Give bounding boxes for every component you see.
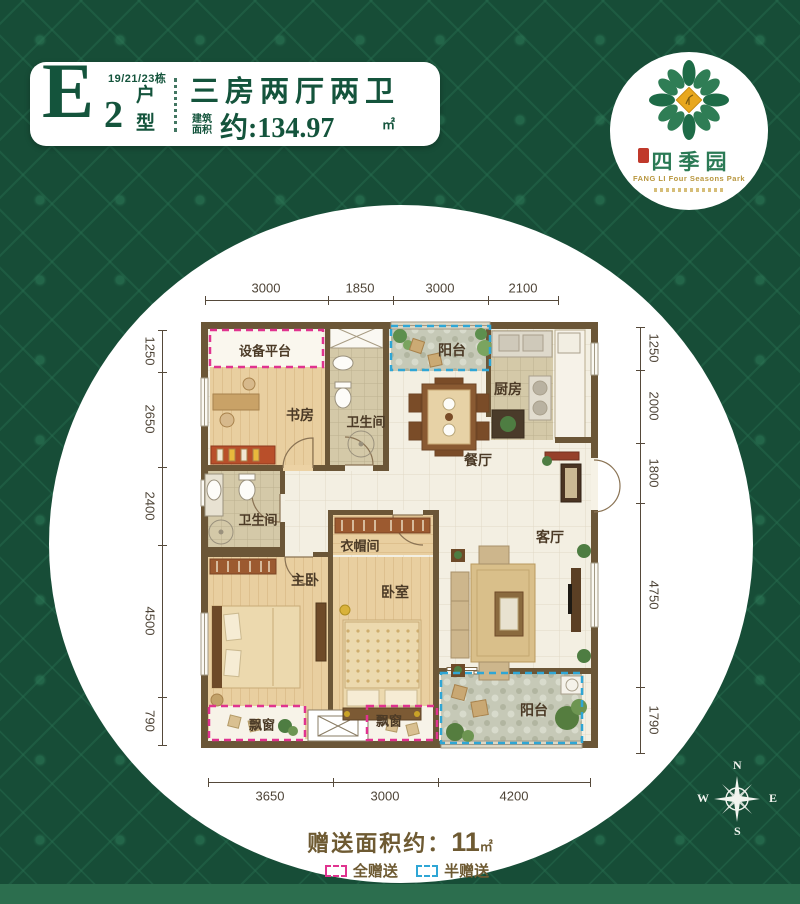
- dim-tick: [438, 778, 439, 787]
- label-bedroom: 卧室: [381, 582, 409, 602]
- logo-english: FANG LI Four Seasons Park: [610, 174, 768, 183]
- dim-bottom-1: 3650: [256, 789, 285, 804]
- dim-tick: [636, 687, 645, 688]
- dim-tick: [558, 296, 559, 305]
- label-bay-window-right: 飘窗: [376, 711, 402, 730]
- gift-area-unit: ㎡: [480, 839, 493, 854]
- gift-area-line: 赠送面积约：11㎡: [0, 826, 800, 858]
- full-gift-label: 全赠送: [353, 863, 398, 880]
- poster-background: E 2 19/21/23栋 户 型 三房两厅两卫 建筑面积 约:134.97 ㎡: [0, 0, 800, 904]
- compass-south: S: [734, 824, 741, 839]
- bedroom-bed: [340, 605, 421, 720]
- cloakroom-rack: [335, 518, 430, 533]
- label-master-bedroom: 主卧: [291, 570, 319, 590]
- clover-leaf-icon: [610, 52, 768, 144]
- dim-tick: [158, 545, 167, 546]
- compass-rose-icon: [713, 775, 761, 823]
- dim-top-2: 1850: [346, 281, 375, 296]
- logo-name: 四季园: [610, 146, 768, 176]
- label-cloakroom: 衣帽间: [340, 536, 379, 555]
- label-kitchen: 厨房: [494, 379, 522, 399]
- area-unit: ㎡: [382, 114, 395, 133]
- dim-tick: [636, 443, 645, 444]
- compass-east: E: [769, 791, 777, 806]
- dim-right-2: 2000: [647, 392, 662, 421]
- dim-tick: [208, 778, 209, 787]
- dim-tick: [590, 778, 591, 787]
- dim-tick: [158, 467, 167, 468]
- header-divider: [174, 78, 177, 132]
- dim-tick: [488, 296, 489, 305]
- bottom-band: [0, 884, 800, 904]
- dim-tick: [636, 327, 645, 328]
- dim-right-1: 1250: [647, 334, 662, 363]
- dim-left-2: 2650: [143, 405, 158, 434]
- dim-tick: [333, 778, 334, 787]
- area-prefix-top: 建筑: [192, 114, 212, 125]
- dim-tick: [158, 372, 167, 373]
- dim-left-5: 790: [143, 710, 158, 732]
- unit-type-char-2: 型: [136, 108, 155, 135]
- dim-tick: [158, 745, 167, 746]
- dim-tick: [158, 330, 167, 331]
- dim-bottom-3: 4200: [500, 789, 529, 804]
- dim-top-4: 2100: [509, 281, 538, 296]
- area-prefix-bottom: 面积: [192, 125, 212, 136]
- dim-top-1: 3000: [252, 281, 281, 296]
- dim-tick: [328, 296, 329, 305]
- dim-right-5: 1790: [647, 706, 662, 735]
- layout-title: 三房两厅两卫: [190, 68, 400, 110]
- label-study: 书房: [286, 405, 314, 425]
- gift-area-label: 赠送面积约：: [307, 831, 451, 856]
- header-card: E 2 19/21/23栋 户 型 三房两厅两卫 建筑面积 约:134.97 ㎡: [30, 62, 440, 146]
- dim-tick: [636, 370, 645, 371]
- label-bathroom1: 卫生间: [346, 412, 385, 431]
- compass-north: N: [733, 758, 742, 773]
- floor-plan: [195, 318, 635, 768]
- label-balcony-bottom: 阳台: [520, 700, 548, 720]
- dim-top-3: 3000: [426, 281, 455, 296]
- label-dining: 餐厅: [464, 450, 492, 470]
- half-gift-label: 半赠送: [444, 863, 489, 880]
- label-balcony-top: 阳台: [438, 340, 466, 360]
- compass: N E S W: [699, 760, 775, 838]
- dim-tick: [205, 296, 206, 305]
- full-gift-swatch: [325, 865, 347, 877]
- area-value: 约:134.97: [220, 106, 334, 146]
- dim-right-3: 1800: [647, 459, 662, 488]
- dim-right-4: 4750: [647, 581, 662, 610]
- compass-west: W: [697, 791, 709, 806]
- label-bathroom2: 卫生间: [238, 510, 277, 529]
- gift-area-value: 11: [451, 827, 480, 857]
- label-living: 客厅: [536, 527, 564, 547]
- dim-tick: [636, 753, 645, 754]
- label-equipment-platform: 设备平台: [239, 341, 291, 360]
- brand-logo: 四季园 FANG LI Four Seasons Park: [610, 52, 768, 210]
- dim-tick: [636, 503, 645, 504]
- logo-tagline-rule: [654, 188, 724, 192]
- unit-number: 2: [104, 96, 123, 134]
- area-prefix: 建筑面积: [192, 114, 212, 136]
- unit-letter: E: [42, 52, 94, 130]
- dim-bottom-2: 3000: [371, 789, 400, 804]
- dim-left-1: 1250: [143, 337, 158, 366]
- dim-tick: [158, 697, 167, 698]
- dim-left-4: 4500: [143, 607, 158, 636]
- label-bay-window-left: 飘窗: [249, 715, 275, 734]
- dim-tick: [393, 296, 394, 305]
- half-gift-swatch: [416, 865, 438, 877]
- unit-type-char-1: 户: [136, 80, 155, 107]
- gift-legend: 全赠送 半赠送: [0, 860, 800, 881]
- dim-left-3: 2400: [143, 492, 158, 521]
